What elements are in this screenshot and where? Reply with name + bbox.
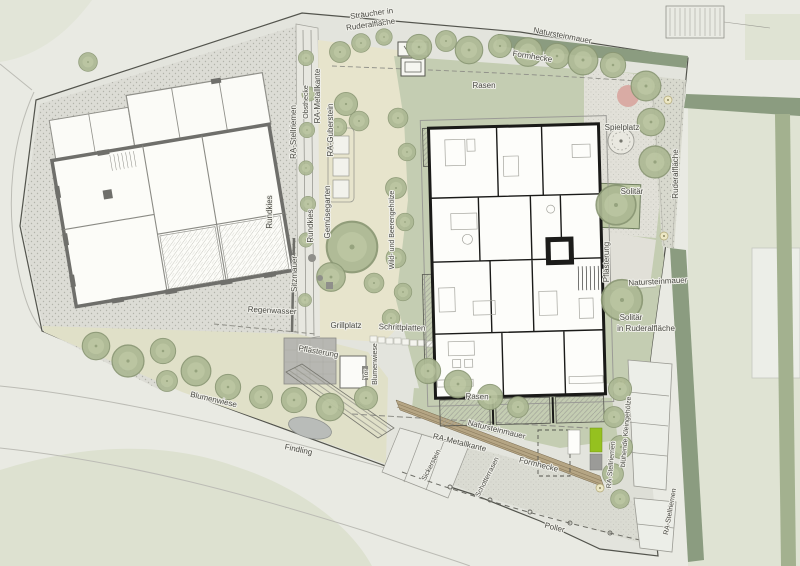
- site-plan-drawing: Sträucher in Ruderalfläche Natursteinmau…: [0, 0, 800, 566]
- tree: [112, 345, 144, 377]
- tree: [299, 122, 314, 137]
- label-sitzmauer: Sitzmauer: [290, 256, 299, 292]
- label-rasen-bottom: Rasen: [465, 392, 488, 402]
- tree: [299, 161, 313, 175]
- tree: [639, 146, 671, 178]
- terrace-3: [556, 396, 605, 423]
- green-container: [590, 428, 602, 452]
- tree: [364, 273, 384, 293]
- tree: [298, 50, 313, 65]
- tree: [455, 36, 483, 64]
- site-plan-canvas: Sträucher in Ruderalfläche Natursteinmau…: [0, 0, 800, 566]
- tree: [604, 407, 625, 428]
- tree: [388, 108, 408, 128]
- tree: [406, 34, 431, 59]
- grey-container: [590, 454, 602, 470]
- tree: [396, 213, 414, 231]
- tree: [631, 71, 661, 101]
- label-schrittplatten: Schrittplatten: [379, 322, 426, 333]
- tree: [394, 283, 412, 301]
- label-blumenwiese-v: Blumenwiese: [372, 343, 379, 385]
- tree: [600, 52, 625, 77]
- tree: [488, 34, 511, 57]
- label-rundkies-2: Rundkies: [306, 209, 315, 242]
- label-solitaer: Solitär: [621, 187, 644, 196]
- tree: [611, 490, 630, 509]
- tree: [436, 31, 457, 52]
- label-spielplatz: Spielplatz: [605, 123, 640, 132]
- tree: [568, 45, 598, 75]
- tree: [157, 371, 178, 392]
- green-patch-topright: [745, 14, 800, 60]
- tree: [281, 387, 306, 412]
- tree: [354, 386, 377, 409]
- label-ra-stellriemen-left: RA-Stellriemen: [289, 105, 298, 159]
- label-gemuesegarten: Gemüsegarten: [323, 186, 332, 239]
- chimney: [103, 189, 113, 199]
- tree: [79, 53, 98, 72]
- label-ruderalflaeche-r: Ruderalfläche: [671, 149, 680, 199]
- tree: [330, 42, 351, 63]
- label-obsthecke: Obsthecke: [303, 85, 310, 119]
- tree: [415, 358, 440, 383]
- label-ra-metallkante-left: RA-Metallkante: [313, 68, 322, 123]
- tree: [316, 393, 344, 421]
- tree: [181, 356, 211, 386]
- tree: [249, 385, 272, 408]
- label-rasen-top: Rasen: [472, 81, 495, 90]
- label-wild-beeren: Wild- und Beerengehölze: [389, 191, 396, 270]
- label-solitaer-ruderal-2: in Ruderalfläche: [617, 324, 675, 333]
- tree: [298, 293, 311, 306]
- label-tor: Tor: [363, 369, 370, 379]
- label-ra-guberstein: RA-Guberstein: [326, 104, 335, 157]
- label-grillplatz: Grillplatz: [330, 321, 361, 330]
- tree: [508, 397, 529, 418]
- tree: [398, 143, 416, 161]
- tree: [349, 111, 369, 131]
- label-rundkies-1: Rundkies: [265, 195, 274, 228]
- tree: [150, 338, 175, 363]
- label-solitaer-ruderal-1: Solitär: [620, 313, 643, 322]
- tree: [376, 29, 393, 46]
- tree: [82, 332, 110, 360]
- label-pflaesterung-r: Pflästerung: [602, 242, 611, 282]
- tree: [637, 108, 665, 136]
- tree: [352, 34, 371, 53]
